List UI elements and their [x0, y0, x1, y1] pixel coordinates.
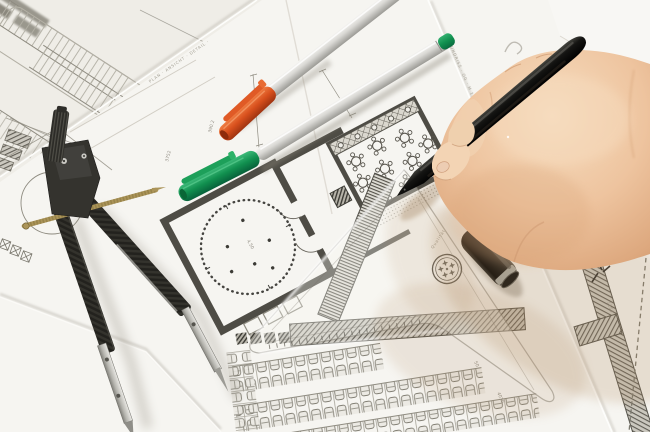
photo-root: PLAN · ANSICHT · DETAIL · 3752 390.2	[0, 0, 650, 432]
photo-architect-plans: PLAN · ANSICHT · DETAIL · 3752 390.2	[0, 0, 650, 432]
highlight-speck	[507, 136, 509, 138]
hand-shading	[450, 165, 590, 265]
hand-highlight	[490, 75, 630, 165]
